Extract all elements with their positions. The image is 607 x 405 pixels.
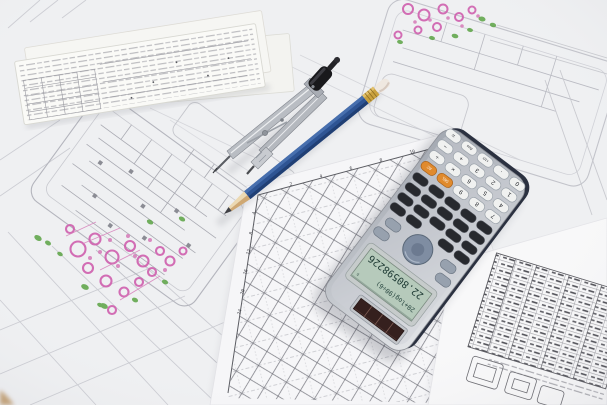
photo-canvas: 4 8 12 16 20 24 2 4 6 8 10 [0, 0, 607, 405]
blueprint-scene: 4 8 12 16 20 24 2 4 6 8 10 [0, 0, 607, 405]
vignette-overlay [0, 0, 607, 405]
